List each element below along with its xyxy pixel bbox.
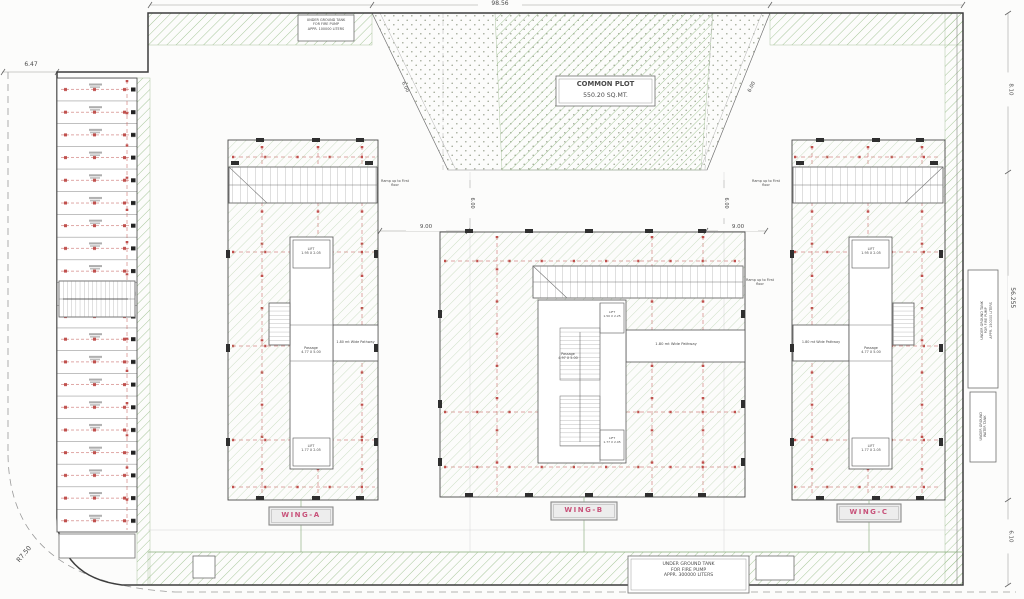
ramp-label-a: Ramp up to First floor [381,179,409,188]
dim-nine-right: 9.00 [718,224,758,231]
dim-plot-height: 56.255 [1008,276,1016,320]
passage-size: 4.97 X 5.00 [548,356,588,360]
strip-staircase [59,281,135,317]
ramp-label-b: Ramp up to First floor [746,278,774,287]
tank-right-label: UNDER GROUND TANK FOR FIRE PUMP APPR. 15… [980,261,993,380]
tank-topleft-line3: APPR. 100000 LITERS [299,27,353,31]
lift-size: 1.77 X 2.05 [597,441,627,445]
wing-b-passage-label: Passage 4.97 X 5.00 [548,352,588,361]
dim-nine-left: 9.00 [406,224,446,231]
wing-c-ramp [793,167,943,203]
ramp-label-c: Ramp up to First floor [752,179,780,188]
dim-offset-left: 6.47 [13,61,49,69]
tank-right-line3: APPR. 150000 LITERS [989,261,993,380]
wing-a-staircase [269,303,290,345]
tank-topleft-label: UNDER GROUND TANK FOR FIRE PUMP APPR. 10… [299,18,353,31]
lift-size: 1.95 X 2.05 [851,251,891,255]
lift-size: 1.77 X 2.05 [851,448,891,452]
passage-size: 4.77 X 5.00 [851,350,891,354]
tank-bottom-line3: APPR. 300000 LITERS [629,573,748,579]
wing-c-passage-label: Passage 4.77 X 5.00 [851,346,891,355]
dim-eight-ten: 8.10 [1007,72,1014,106]
wing-b-ramp [533,266,743,298]
right-box2-line2: WATER TANK [983,391,987,461]
lift-size: 1.77 X 2.05 [291,448,331,452]
passage-size: 4.77 X 5.00 [291,350,331,354]
right-box2-label: UNDER GROUND WATER TANK [979,391,988,461]
common-plot-area: 550.20 SQ.MT. [557,92,654,100]
wing-c-lift-top-label: LIFT 1.95 X 2.05 [851,247,891,256]
floor-plan: 98.56 56.255 6.47 R7.50 COMMON PLOT 550.… [0,0,1024,599]
parking-strip [57,78,137,558]
lift-size: 1.95 X 2.05 [291,251,331,255]
common-plot-name: COMMON PLOT [557,80,654,88]
wing-b-lift-top-label: LIFT 1.50 X 2.25 [597,311,627,319]
wing-a-passage-label: Passage 4.77 X 5.00 [291,346,331,355]
wing-b-label: WING-B [551,506,617,515]
wing-a-lift-top-label: LIFT 1.95 X 2.05 [291,247,331,256]
dim-plot-width: 98.56 [478,0,522,8]
dim-six-ten: 6.10 [1007,519,1014,553]
wing-a-lift-bottom-label: LIFT 1.77 X 2.05 [291,444,331,453]
pathway-label-c: 1.80 mt Wide Pathway [796,340,846,344]
wing-c-staircase [893,303,914,345]
pathway-label-a: 1.80 mt Wide Pathway [333,340,378,344]
tank-bottom-label: UNDER GROUND TANK FOR FIRE PUMP APPR. 30… [629,562,748,579]
wing-c-label: WING-C [837,508,901,517]
wing-a-label: WING-A [269,511,333,520]
wing-b-lift-bottom-label: LIFT 1.77 X 2.05 [597,437,627,445]
wing-b-structure [440,232,745,497]
wing-a-ramp [229,167,377,203]
dim-six-right: 6.00 [723,188,729,218]
wing-c-lift-bottom-label: LIFT 1.77 X 2.05 [851,444,891,453]
dim-six-left: 6.00 [469,188,475,218]
pathway-label-b: 1.80 mt Wide Pathway [645,342,707,347]
lift-size: 1.50 X 2.25 [597,315,627,319]
